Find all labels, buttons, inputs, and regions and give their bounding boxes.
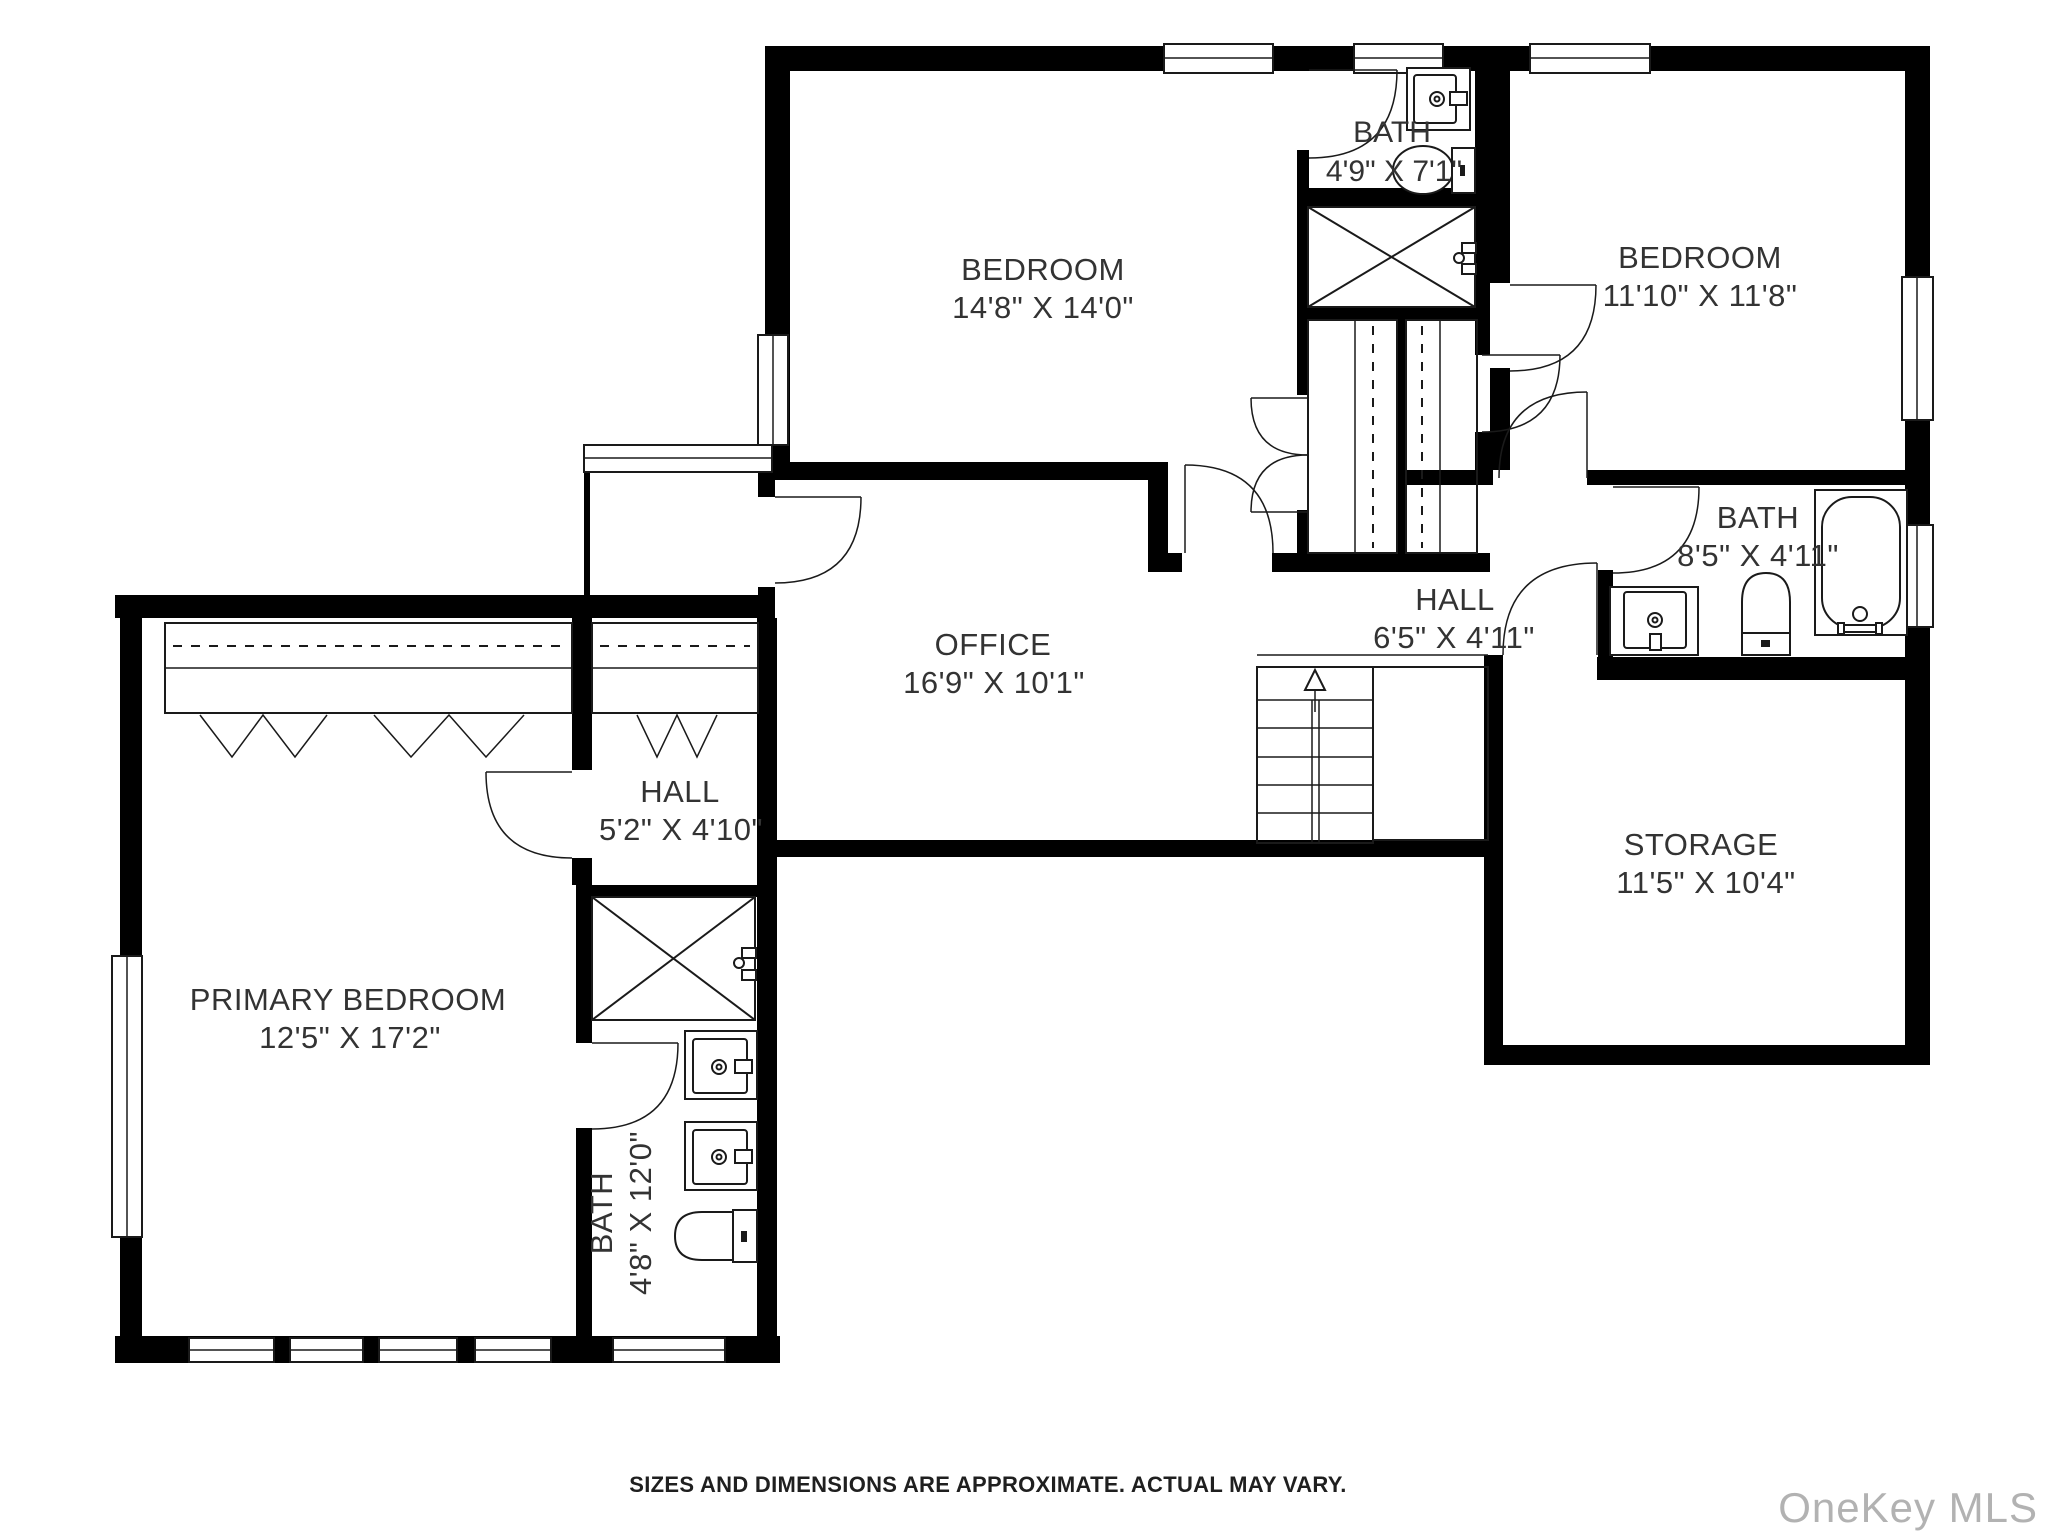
room-dims-primary-bedroom: 12'5" X 17'2" bbox=[259, 1020, 441, 1055]
door bbox=[1510, 285, 1596, 371]
room-dims-office: 16'9" X 10'1" bbox=[903, 665, 1085, 700]
room-dims-hall-lower: 5'2" X 4'10" bbox=[599, 812, 763, 847]
sink-vanity bbox=[685, 1122, 757, 1190]
window bbox=[290, 1338, 363, 1362]
toilet bbox=[1742, 573, 1790, 655]
room-label-office: OFFICE bbox=[935, 627, 1052, 662]
window bbox=[1164, 44, 1273, 73]
bifold-door bbox=[200, 715, 717, 757]
labels-layer: BEDROOM 14'8" X 14'0" BATH 4'9" X 7'1" B… bbox=[190, 116, 1839, 1295]
closet bbox=[1308, 320, 1397, 553]
room-dims-bath-primary: 4'8" X 12'0" bbox=[623, 1131, 658, 1295]
floor-plan-drawing: BEDROOM 14'8" X 14'0" BATH 4'9" X 7'1" B… bbox=[0, 0, 2048, 1536]
sink-vanity bbox=[1610, 587, 1698, 655]
sink-vanity bbox=[685, 1031, 757, 1099]
window bbox=[189, 1338, 274, 1362]
room-label-hall-upper: HALL bbox=[1415, 582, 1495, 617]
room-label-bedroom-1: BEDROOM bbox=[961, 252, 1125, 287]
closet bbox=[1406, 320, 1477, 553]
window bbox=[379, 1338, 457, 1362]
toilet bbox=[675, 1210, 757, 1262]
room-dims-hall-upper: 6'5" X 4'11" bbox=[1373, 620, 1535, 655]
window bbox=[584, 445, 772, 472]
window bbox=[1530, 44, 1650, 73]
room-label-bath-top: BATH bbox=[1353, 116, 1431, 149]
stairwell-opening bbox=[1373, 667, 1488, 840]
window bbox=[112, 956, 142, 1237]
floor-plan-page: BEDROOM 14'8" X 14'0" BATH 4'9" X 7'1" B… bbox=[0, 0, 2048, 1536]
room-dims-storage: 11'5" X 10'4" bbox=[1616, 865, 1795, 900]
window bbox=[613, 1338, 725, 1362]
stairs-up-arrow-icon bbox=[1305, 670, 1325, 712]
closet bbox=[165, 623, 572, 713]
closet-double-door bbox=[1251, 398, 1308, 512]
window bbox=[1902, 277, 1933, 420]
door bbox=[592, 1043, 678, 1129]
door bbox=[1499, 392, 1587, 478]
shower-stall bbox=[592, 897, 756, 1020]
door bbox=[486, 772, 572, 858]
room-label-hall-lower: HALL bbox=[640, 774, 720, 809]
door bbox=[1185, 465, 1273, 553]
room-dims-bedroom-2: 11'10" X 11'8" bbox=[1603, 278, 1798, 313]
room-label-storage: STORAGE bbox=[1624, 827, 1779, 862]
room-dims-bath-top: 4'9" X 7'1" bbox=[1326, 155, 1462, 188]
closet bbox=[592, 623, 758, 713]
shower-stall bbox=[1308, 207, 1476, 307]
room-dims-bath-right: 8'5" X 4'11" bbox=[1677, 538, 1839, 573]
door bbox=[775, 497, 861, 583]
window bbox=[475, 1338, 551, 1362]
room-dims-bedroom-1: 14'8" X 14'0" bbox=[952, 290, 1134, 325]
window bbox=[758, 335, 788, 445]
disclaimer-text: SIZES AND DIMENSIONS ARE APPROXIMATE. AC… bbox=[629, 1472, 1346, 1497]
watermark-text: OneKey MLS bbox=[1778, 1484, 2038, 1531]
room-label-primary-bedroom: PRIMARY BEDROOM bbox=[190, 982, 506, 1017]
room-label-bath-right: BATH bbox=[1717, 500, 1799, 535]
room-label-bedroom-2: BEDROOM bbox=[1618, 240, 1782, 275]
staircase bbox=[1257, 655, 1488, 843]
room-label-bath-primary: BATH bbox=[584, 1172, 619, 1254]
